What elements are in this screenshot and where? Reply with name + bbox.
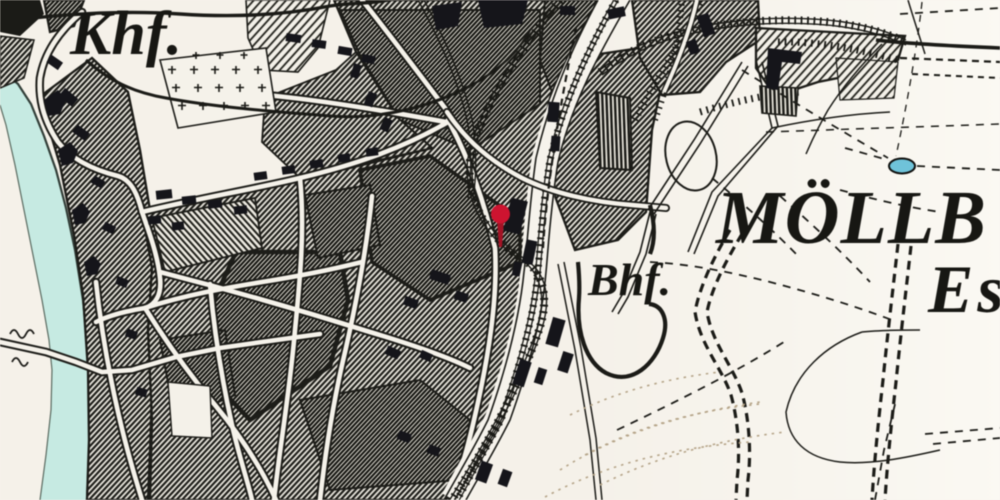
- svg-text:Bhf.: Bhf.: [587, 254, 671, 305]
- svg-text:Khf.: Khf.: [69, 0, 182, 68]
- svg-text:MÖLLB: MÖLLB: [715, 176, 987, 260]
- svg-text:Es: Es: [927, 251, 1000, 327]
